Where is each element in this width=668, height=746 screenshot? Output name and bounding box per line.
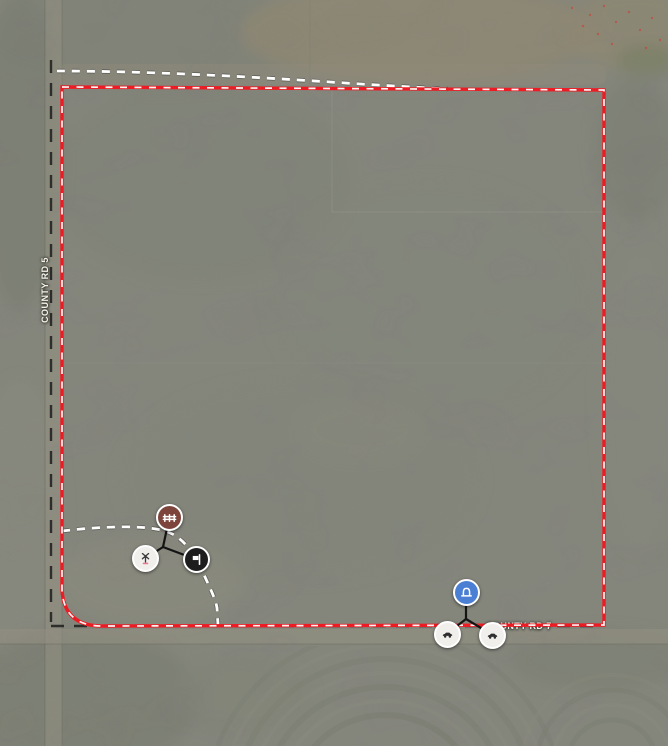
parcel-boundary-overlay bbox=[0, 0, 668, 746]
satellite-map-canvas[interactable]: COUNTY RD 5 COUNTY RD 7 bbox=[0, 0, 668, 746]
gate-marker[interactable] bbox=[453, 579, 480, 606]
marker-spider-legs bbox=[146, 519, 491, 634]
corral-marker[interactable] bbox=[156, 504, 183, 531]
gate-arch-icon bbox=[459, 585, 474, 600]
vehicle-marker-1[interactable] bbox=[434, 621, 461, 648]
windmill-marker[interactable] bbox=[132, 545, 159, 572]
vehicle-icon bbox=[440, 627, 455, 642]
vehicle-marker-2[interactable] bbox=[479, 622, 506, 649]
windmill-icon bbox=[138, 551, 153, 566]
flag-marker[interactable] bbox=[183, 546, 210, 573]
fence-icon bbox=[162, 510, 177, 525]
flag-icon bbox=[189, 552, 204, 567]
vehicle-icon bbox=[485, 628, 500, 643]
